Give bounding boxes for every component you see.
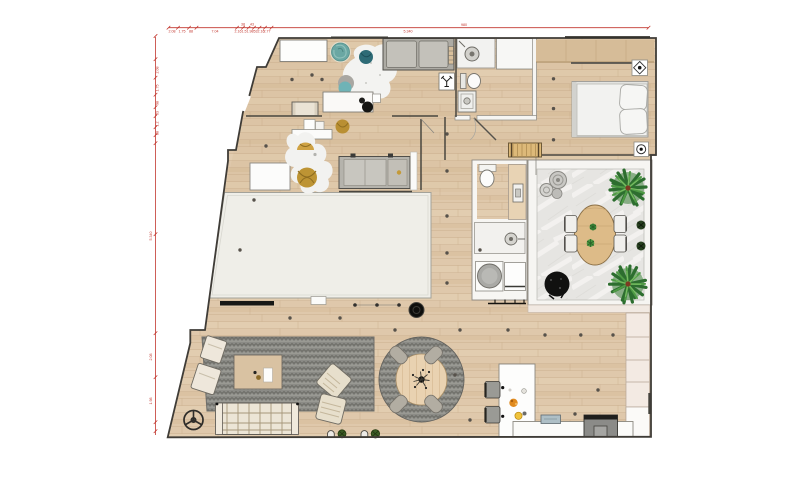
svg-text:1.75: 1.75: [156, 85, 160, 92]
svg-text:88: 88: [189, 30, 193, 34]
svg-text:53: 53: [156, 111, 160, 115]
svg-text:43: 43: [250, 23, 254, 27]
svg-text:1.75: 1.75: [179, 30, 186, 34]
svg-text:980: 980: [461, 23, 467, 27]
svg-text:2.16: 2.16: [235, 30, 242, 34]
svg-text:1.98: 1.98: [247, 30, 254, 34]
svg-text:7.04: 7.04: [212, 30, 219, 34]
svg-text:1.98: 1.98: [149, 398, 153, 405]
svg-text:38: 38: [241, 23, 245, 27]
svg-text:2.08: 2.08: [156, 67, 160, 74]
svg-text:5.340: 5.340: [404, 30, 413, 34]
svg-text:1.2: 1.2: [156, 122, 160, 127]
svg-text:2.08: 2.08: [169, 30, 176, 34]
svg-text:2.08: 2.08: [149, 354, 153, 361]
svg-text:88: 88: [156, 131, 160, 135]
svg-text:2.77: 2.77: [264, 30, 271, 34]
svg-text:98: 98: [156, 101, 160, 105]
svg-text:5.340: 5.340: [149, 232, 153, 241]
